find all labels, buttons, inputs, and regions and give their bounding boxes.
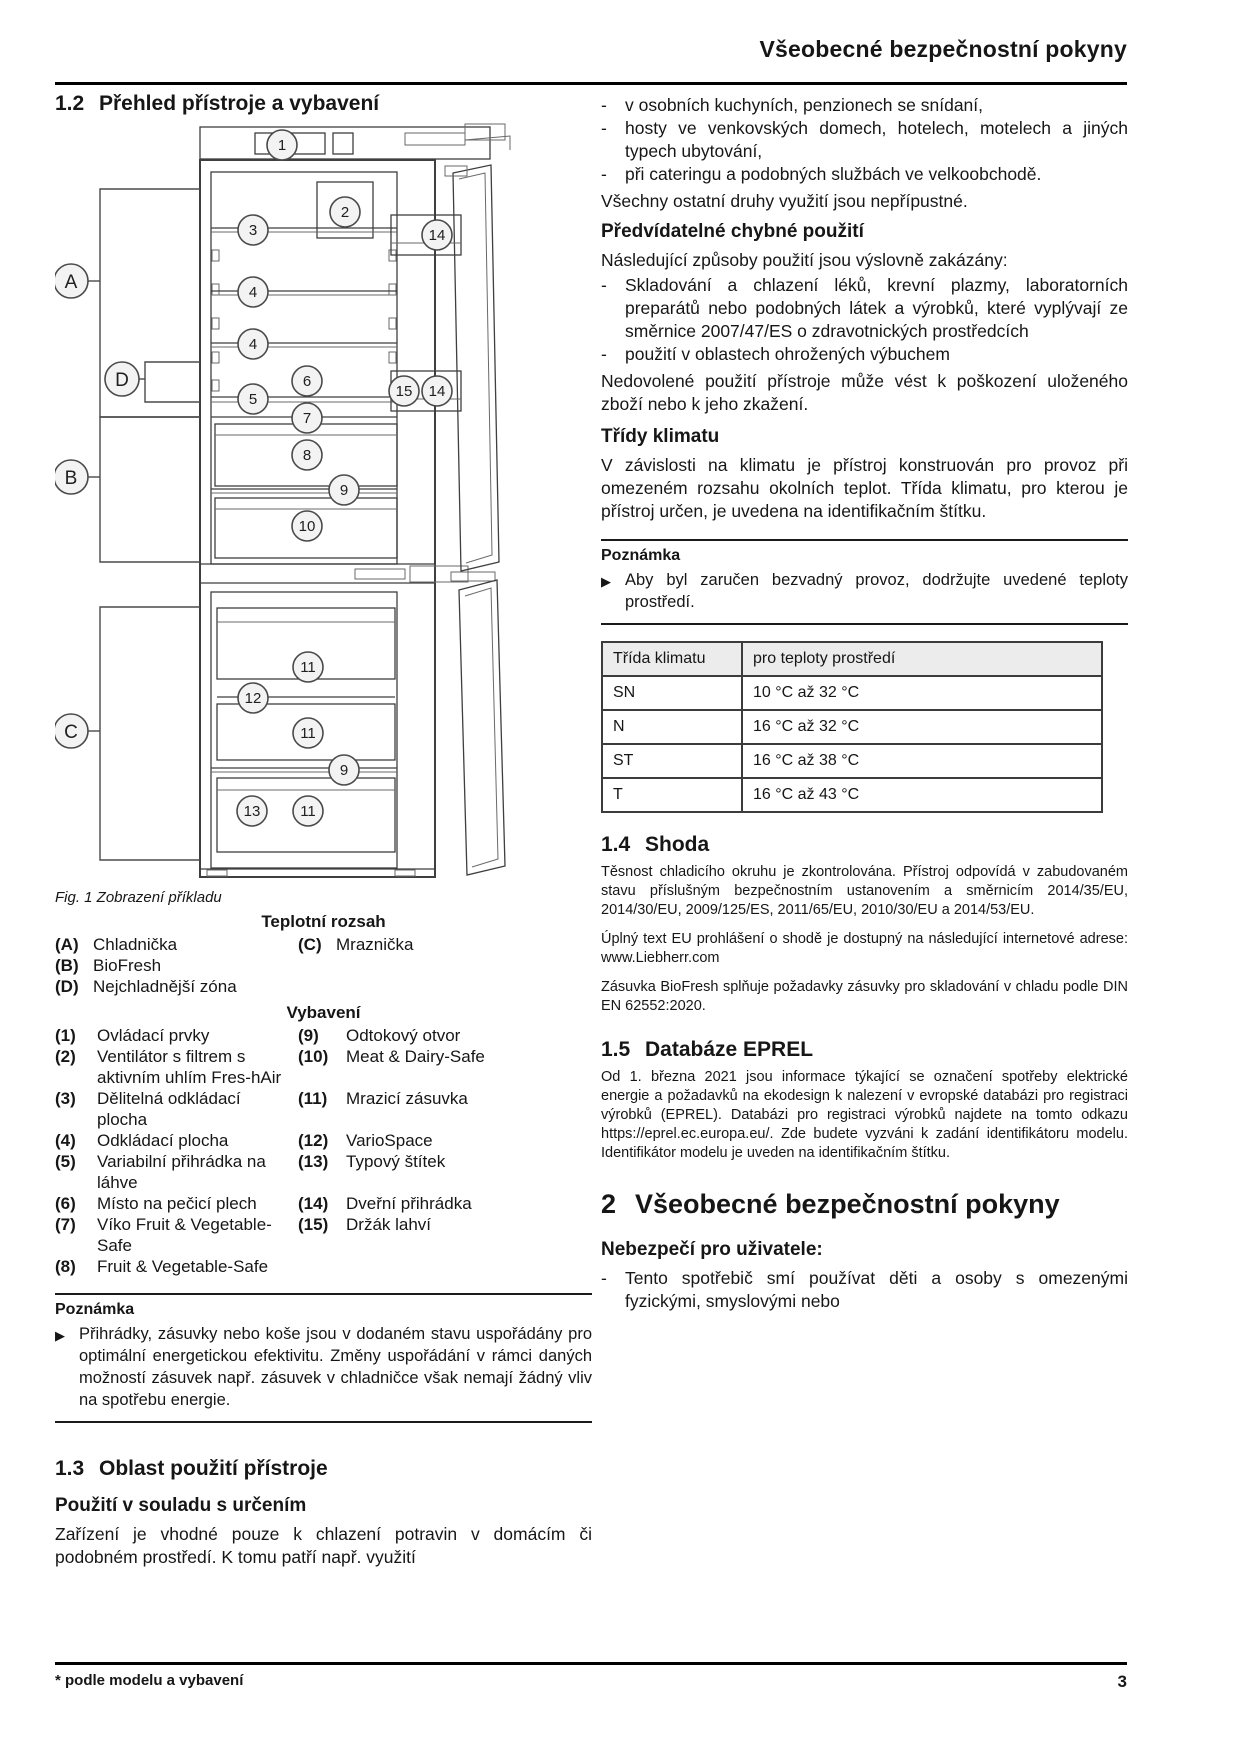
conformity-paragraph: Těsnost chladicího okruhu je zkontrolová…	[601, 863, 1128, 920]
section-title: Shoda	[645, 833, 709, 856]
equip-item-6: (6)Místo na pečicí plech	[55, 1193, 282, 1214]
equip-item-10: (10)Meat & Dairy-Safe	[298, 1046, 592, 1088]
fridge-diagram: A B C D 1 2 3 14 4 4 6 5 15 14 7 8 9 10 …	[55, 122, 575, 878]
callout-12: 12	[238, 683, 268, 713]
zone-b-bracket	[100, 417, 200, 562]
svg-text:C: C	[64, 722, 78, 743]
equipment-legend: (1)Ovládací prvky (9)Odtokový otvor (2)V…	[55, 1025, 592, 1277]
column-header: pro teploty prostředí	[742, 642, 1102, 676]
section-2-heading: 2Všeobecné bezpečnostní pokyny	[601, 1183, 1128, 1225]
climate-classes-subheading: Třídy klimatu	[601, 426, 1128, 448]
callout-letter-B: B	[55, 460, 88, 494]
triangle-bullet-icon: ▶	[601, 569, 625, 613]
svg-text:11: 11	[300, 659, 316, 676]
callout-8: 8	[292, 440, 322, 470]
table-row: ST16 °C až 38 °C	[602, 744, 1102, 778]
equip-item-3: (3)Dělitelná odkládací plocha	[55, 1088, 282, 1130]
section-number: 1.2	[55, 92, 99, 116]
legend-item-B: (B)BioFresh	[55, 955, 282, 976]
page-header-title: Všeobecné bezpečnostní pokyny	[55, 36, 1127, 63]
section-1-5-heading: 1.5Databáze EPREL	[601, 1038, 1128, 1062]
note-title: Poznámka	[601, 547, 1128, 565]
svg-text:14: 14	[429, 383, 446, 400]
equip-item-11: (11)Mrazicí zásuvka	[298, 1088, 592, 1130]
section-number: 2	[601, 1183, 635, 1225]
callout-2: 2	[330, 197, 360, 227]
footer-rule	[55, 1662, 1127, 1665]
section-1-2-heading: 1.2Přehled přístroje a vybavení	[55, 92, 592, 116]
svg-text:B: B	[65, 468, 78, 489]
use-list-item: -v osobních kuchyních, penzionech se sní…	[601, 94, 1128, 117]
equip-item-8: (8)Fruit & Vegetable-Safe	[55, 1256, 282, 1277]
misuse-subheading: Předvídatelné chybné použití	[601, 221, 1128, 243]
svg-text:4: 4	[249, 336, 257, 353]
temp-range-legend: (A)Chladnička (C)Mraznička (B)BioFresh (…	[55, 934, 592, 997]
equip-item-13: (13)Typový štítek	[298, 1151, 592, 1193]
table-row: T16 °C až 43 °C	[602, 778, 1102, 812]
svg-text:9: 9	[340, 762, 348, 779]
callout-4a: 4	[238, 277, 268, 307]
svg-text:13: 13	[244, 803, 261, 820]
section-1-4-heading: 1.4Shoda	[601, 833, 1128, 857]
zone-c-bracket	[100, 607, 200, 860]
table-row: SN10 °C až 32 °C	[602, 676, 1102, 710]
equip-item-15: (15)Držák lahví	[298, 1214, 592, 1256]
svg-text:3: 3	[249, 222, 257, 239]
other-uses-paragraph: Všechny ostatní druhy využití jsou nepří…	[601, 190, 1128, 213]
callout-10: 10	[292, 511, 322, 541]
climate-paragraph: V závislosti na klimatu je přístroj kons…	[601, 454, 1128, 523]
note-item: ▶ Přihrádky, zásuvky nebo koše jsou v do…	[55, 1323, 592, 1411]
callout-letter-A: A	[55, 264, 88, 298]
equip-item-7: (7)Víko Fruit & Vegetable-Safe	[55, 1214, 282, 1256]
legend-item-A: (A)Chladnička	[55, 934, 282, 955]
section-number: 1.4	[601, 833, 645, 857]
svg-text:7: 7	[303, 410, 311, 427]
section-1-3-heading: 1.3Oblast použití přístroje	[55, 1457, 592, 1481]
section-title: Přehled přístroje a vybavení	[99, 92, 379, 115]
use-list-item: -při cateringu a podobných službách ve v…	[601, 163, 1128, 186]
callout-15: 15	[389, 376, 419, 406]
svg-text:11: 11	[300, 725, 316, 742]
svg-text:9: 9	[340, 482, 348, 499]
table-row: N16 °C až 32 °C	[602, 710, 1102, 744]
intended-use-subheading: Použití v souladu s určením	[55, 1495, 592, 1517]
section-number: 1.5	[601, 1038, 645, 1062]
equip-item-12: (12)VarioSpace	[298, 1130, 592, 1151]
callout-5: 5	[238, 384, 268, 414]
svg-text:8: 8	[303, 447, 311, 464]
fridge-door	[453, 165, 499, 571]
forbidden-intro-paragraph: Následující způsoby použití jsou výslovn…	[601, 249, 1128, 272]
header-rule	[55, 82, 1127, 85]
svg-text:4: 4	[249, 284, 257, 301]
misuse-consequence-paragraph: Nedovolené použití přístroje může vést k…	[601, 370, 1128, 416]
legend-item-C: (C)Mraznička	[298, 934, 592, 955]
left-column: 1.2Přehled přístroje a vybavení	[55, 92, 592, 1571]
svg-text:14: 14	[429, 227, 446, 244]
section-number: 1.3	[55, 1457, 99, 1481]
callout-letter-C: C	[55, 714, 88, 748]
callout-9b: 9	[329, 755, 359, 785]
callout-4b: 4	[238, 329, 268, 359]
page-number: 3	[1118, 1672, 1127, 1692]
svg-text:11: 11	[300, 803, 316, 820]
eprel-paragraph: Od 1. března 2021 jsou informace týkajíc…	[601, 1068, 1128, 1163]
footer-model-note: * podle modelu a vybavení	[55, 1672, 243, 1689]
note-box-equipment: Poznámka ▶ Přihrádky, zásuvky nebo koše …	[55, 1293, 592, 1423]
column-header: Třída klimatu	[602, 642, 742, 676]
callout-3: 3	[238, 215, 268, 245]
freezer-door	[459, 580, 505, 875]
manual-page: Všeobecné bezpečnostní pokyny 1.2Přehled…	[0, 0, 1240, 1754]
section-title: Oblast použití přístroje	[99, 1457, 328, 1480]
right-column: -v osobních kuchyních, penzionech se sní…	[601, 94, 1128, 1313]
callout-14a: 14	[422, 220, 452, 250]
svg-text:6: 6	[303, 373, 311, 390]
callout-7: 7	[292, 403, 322, 433]
callout-6: 6	[292, 366, 322, 396]
note-item: ▶ Aby byl zaručen bezvadný provoz, dodrž…	[601, 569, 1128, 613]
callout-9a: 9	[329, 475, 359, 505]
section-title: Databáze EPREL	[645, 1038, 813, 1061]
eu-declaration-paragraph: Úplný text EU prohlášení o shodě je dost…	[601, 930, 1128, 968]
note-box-climate: Poznámka ▶ Aby byl zaručen bezvadný prov…	[601, 539, 1128, 625]
svg-text:2: 2	[341, 204, 349, 221]
callout-1: 1	[267, 130, 297, 160]
table-header-row: Třída klimatu pro teploty prostředí	[602, 642, 1102, 676]
danger-list-item: -Tento spotřebič smí používat děti a oso…	[601, 1267, 1128, 1313]
callout-14b: 14	[422, 376, 452, 406]
note-title: Poznámka	[55, 1301, 592, 1319]
svg-text:12: 12	[245, 690, 262, 707]
climate-class-table: Třída klimatu pro teploty prostředí SN10…	[601, 641, 1103, 813]
equip-item-5: (5)Variabilní přihrádka na láhve	[55, 1151, 282, 1193]
section-title: Všeobecné bezpečnostní pokyny	[635, 1189, 1060, 1219]
zone-d-bracket	[145, 362, 200, 402]
equip-item-2: (2)Ventilátor s filtrem s aktivním uhlím…	[55, 1046, 282, 1088]
biofresh-din-paragraph: Zásuvka BioFresh splňuje požadavky zásuv…	[601, 978, 1128, 1016]
callout-13: 13	[237, 796, 267, 826]
svg-text:1: 1	[278, 137, 286, 154]
use-list-item: -hosty ve venkovských domech, hotelech, …	[601, 117, 1128, 163]
liebherr-url: www.Liebherr.com	[601, 950, 719, 966]
equip-item-9: (9)Odtokový otvor	[298, 1025, 592, 1046]
callout-letter-D: D	[105, 362, 139, 396]
equipment-heading: Vybavení	[55, 1003, 592, 1023]
svg-text:D: D	[115, 370, 129, 391]
callout-11b: 11	[293, 718, 323, 748]
appliance-figure: A B C D 1 2 3 14 4 4 6 5 15 14 7 8 9 10 …	[55, 122, 592, 883]
user-danger-subheading: Nebezpečí pro uživatele:	[601, 1239, 1128, 1261]
forbidden-list-item: -použití v oblastech ohrožených výbuchem	[601, 343, 1128, 366]
svg-text:5: 5	[249, 391, 257, 408]
equip-item-4: (4)Odkládací plocha	[55, 1130, 282, 1151]
triangle-bullet-icon: ▶	[55, 1323, 79, 1411]
legend-item-D: (D)Nejchladnější zóna	[55, 976, 282, 997]
callout-11a: 11	[293, 652, 323, 682]
svg-text:15: 15	[396, 383, 413, 400]
figure-caption: Fig. 1 Zobrazení příkladu	[55, 889, 592, 906]
eprel-url: https://eprel.ec.europa.eu/	[601, 1126, 769, 1142]
svg-text:10: 10	[299, 518, 316, 535]
intended-use-paragraph: Zařízení je vhodné pouze k chlazení potr…	[55, 1523, 592, 1569]
temp-range-heading: Teplotní rozsah	[55, 912, 592, 932]
equip-item-14: (14)Dveřní přihrádka	[298, 1193, 592, 1214]
svg-text:A: A	[65, 272, 78, 293]
callout-11c: 11	[293, 796, 323, 826]
forbidden-list-item: -Skladování a chlazení léků, krevní plaz…	[601, 274, 1128, 343]
footer: * podle modelu a vybavení 3	[55, 1672, 1127, 1692]
equip-item-1: (1)Ovládací prvky	[55, 1025, 282, 1046]
